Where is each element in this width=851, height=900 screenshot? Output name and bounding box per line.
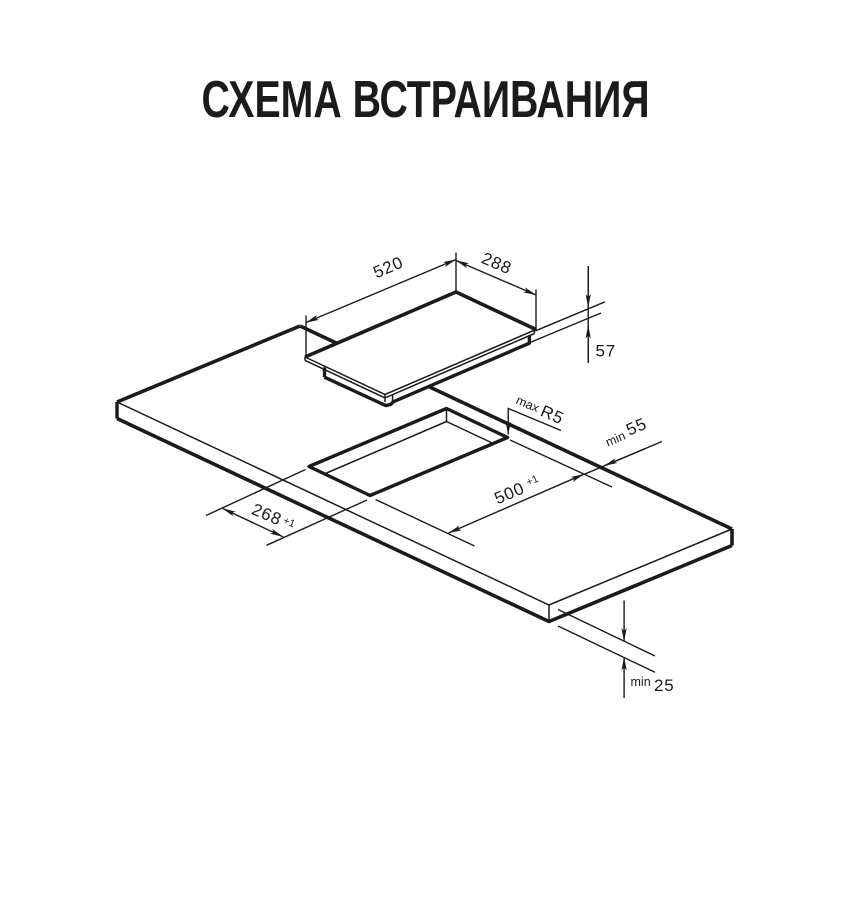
svg-text:25: 25	[654, 676, 675, 695]
svg-text:min: min	[603, 429, 627, 450]
svg-text:268: 268	[249, 500, 285, 530]
svg-text:+1: +1	[525, 473, 541, 489]
svg-text:min: min	[631, 675, 651, 689]
svg-text:R5: R5	[538, 402, 567, 429]
svg-text:500: 500	[492, 479, 528, 509]
svg-text:288: 288	[479, 249, 515, 279]
svg-text:57: 57	[596, 342, 617, 361]
svg-text:520: 520	[370, 253, 406, 283]
svg-text:55: 55	[623, 414, 649, 440]
svg-text:+1: +1	[281, 515, 297, 531]
